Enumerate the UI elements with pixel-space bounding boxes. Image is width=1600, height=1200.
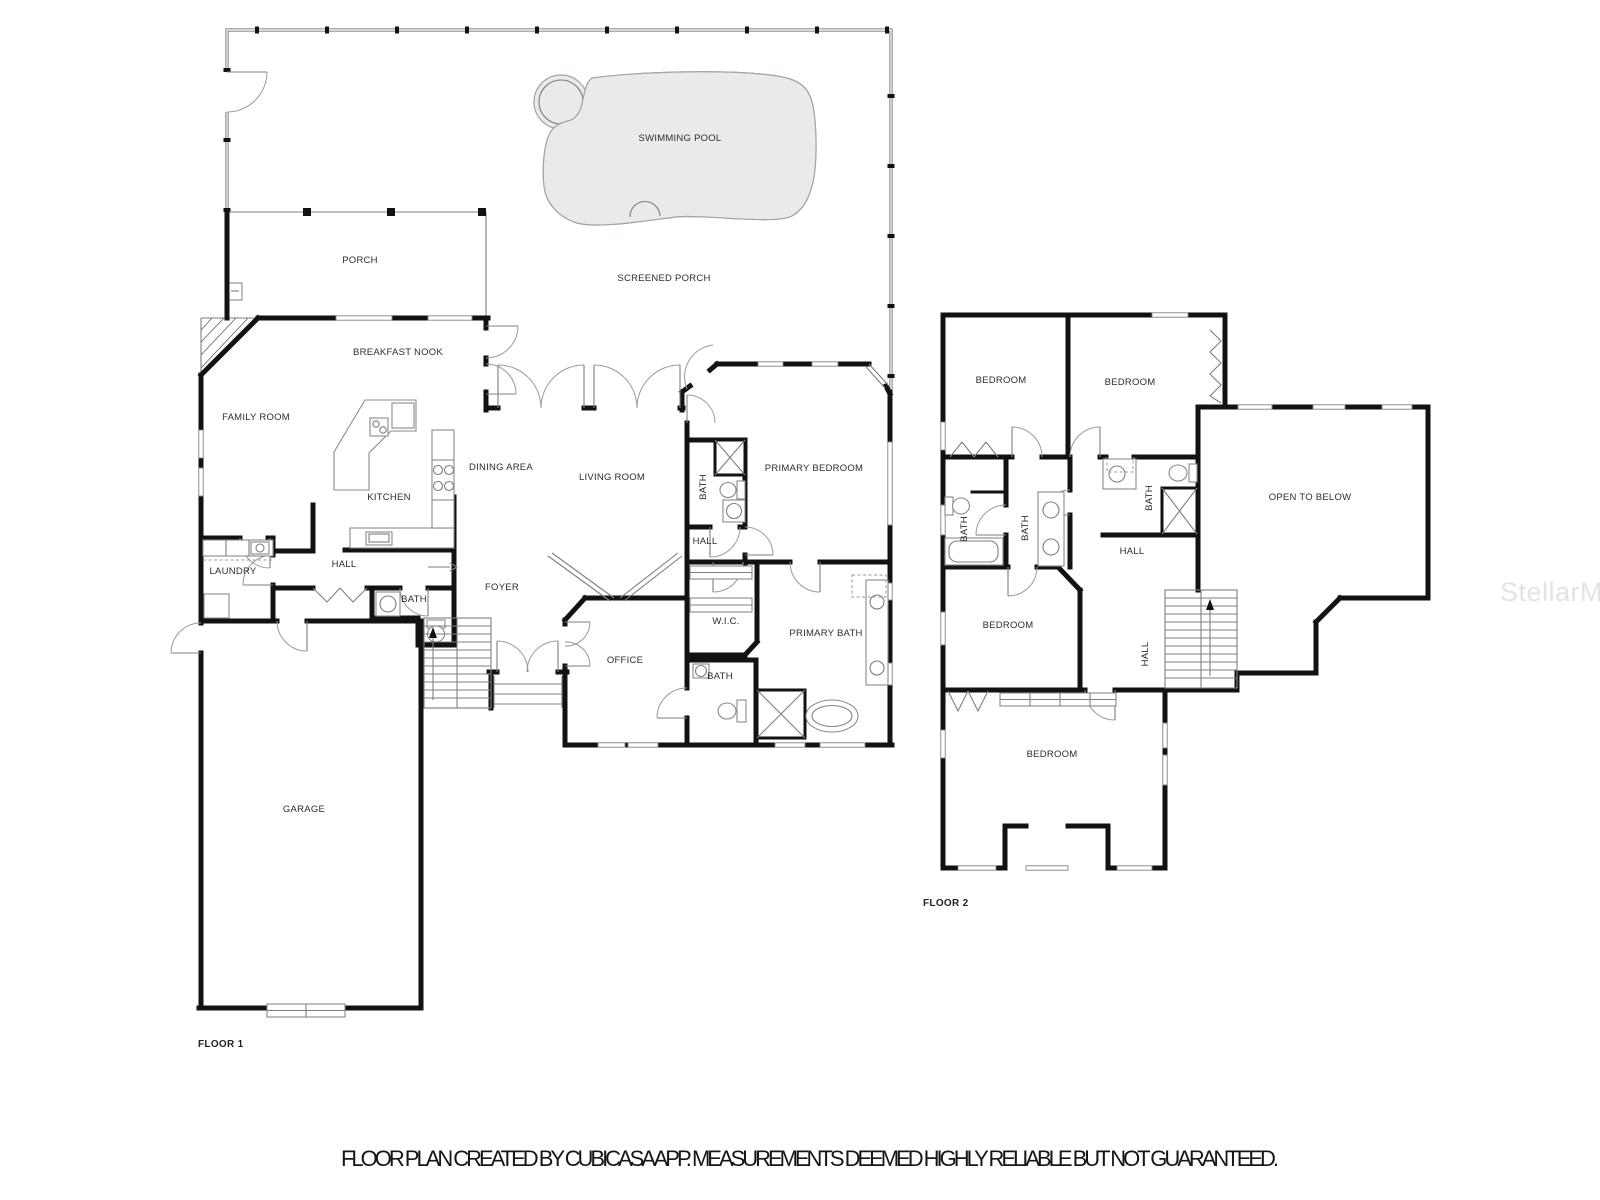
- room-label-bath-b: BATH: [1020, 515, 1031, 541]
- room-label-screened-porch: SCREENED PORCH: [617, 273, 710, 284]
- room-label-bath-a: BATH: [959, 516, 970, 542]
- room-label-bath-c: BATH: [1144, 485, 1155, 511]
- room-label-swimming-pool: SWIMMING POOL: [639, 133, 722, 144]
- room-label-wic: W.I.C.: [712, 616, 739, 627]
- screen-door-gap: [222, 72, 232, 112]
- room-label-office-bath: BATH: [707, 671, 733, 682]
- room-label-primary-bedroom: PRIMARY BEDROOM: [765, 463, 863, 474]
- room-label-open-to-below: OPEN TO BELOW: [1269, 492, 1352, 503]
- floor2-title: FLOOR 2: [923, 898, 969, 909]
- floor1-title: FLOOR 1: [198, 1039, 244, 1050]
- room-label-bedroom-a: BEDROOM: [976, 375, 1027, 386]
- room-label-suite-hall: HALL: [693, 536, 718, 547]
- room-label-bedroom-b: BEDROOM: [1105, 377, 1156, 388]
- floorplan-canvas: SWIMMING POOL SCREENED PORCH PORCH BREAK…: [0, 0, 1600, 1200]
- room-label-hall-bath: BATH: [401, 594, 427, 605]
- room-label-living-room: LIVING ROOM: [579, 472, 645, 483]
- room-label-kitchen: KITCHEN: [367, 492, 410, 503]
- room-label-foyer: FOYER: [485, 582, 519, 593]
- watermark-text: StellarMLS: [1500, 577, 1600, 607]
- room-label-porch: PORCH: [342, 255, 378, 266]
- floorplan-page: SWIMMING POOL SCREENED PORCH PORCH BREAK…: [0, 0, 1600, 1200]
- room-label-office: OFFICE: [607, 655, 643, 666]
- room-label-hall2: HALL: [1120, 546, 1145, 557]
- swimming-pool-shape: [534, 72, 816, 225]
- room-label-stair-hall: HALL: [1140, 642, 1151, 667]
- room-label-dining-area: DINING AREA: [469, 462, 533, 473]
- room-label-primary-bath: PRIMARY BATH: [789, 628, 862, 639]
- room-label-bedroom-d: BEDROOM: [1027, 749, 1078, 760]
- room-label-laundry: LAUNDRY: [210, 566, 257, 577]
- room-label-bedroom-c: BEDROOM: [983, 620, 1034, 631]
- caption-text: FLOOR PLAN CREATED BY CUBICASA APP. MEAS…: [341, 1146, 1279, 1171]
- room-label-suite-bath: BATH: [698, 474, 709, 500]
- room-label-garage: GARAGE: [283, 804, 325, 815]
- room-label-breakfast-nook: BREAKFAST NOOK: [353, 347, 443, 358]
- room-label-hall: HALL: [332, 559, 357, 570]
- room-label-family-room: FAMILY ROOM: [222, 412, 290, 423]
